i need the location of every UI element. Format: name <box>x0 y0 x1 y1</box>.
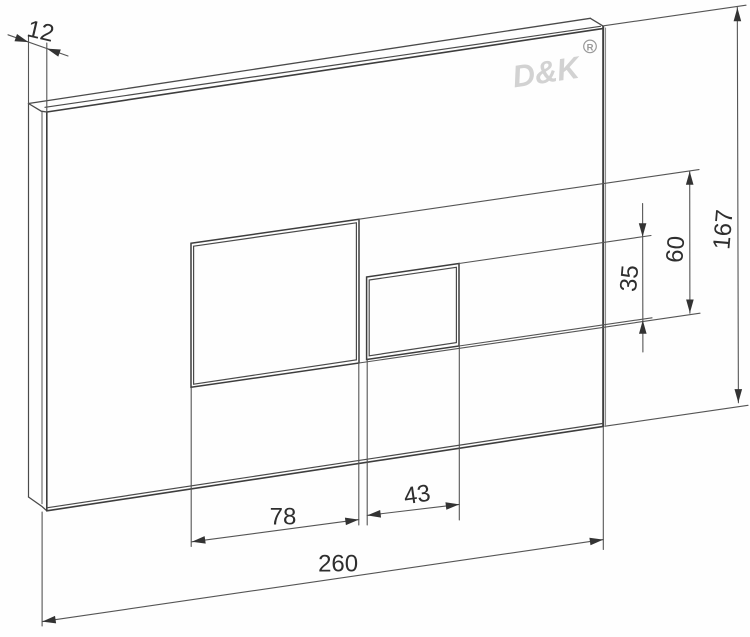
svg-text:167: 167 <box>708 208 738 250</box>
svg-text:35: 35 <box>615 264 644 293</box>
svg-text:78: 78 <box>270 504 297 531</box>
svg-text:260: 260 <box>318 550 358 577</box>
svg-text:60: 60 <box>661 235 690 264</box>
svg-text:R: R <box>587 43 594 54</box>
svg-text:43: 43 <box>402 480 432 510</box>
